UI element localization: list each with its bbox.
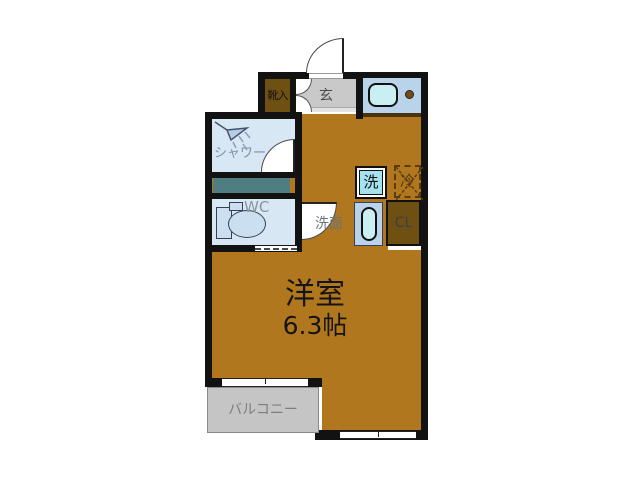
shoebox-area: 靴入 [265, 79, 290, 112]
washer-inner: 洗 [359, 170, 383, 195]
balcony-label: バルコニー [228, 403, 298, 417]
utility-counter-strip [213, 178, 290, 193]
washbasin-label: 洗面 [315, 217, 343, 231]
balcony-window [222, 378, 308, 387]
kitchen-sink-icon [368, 83, 398, 107]
wc-label: WC [244, 200, 269, 215]
wall-right [421, 72, 428, 440]
wall-top-left [258, 72, 309, 79]
main-floor-area-lower [322, 380, 421, 433]
wall-balcony-stub-right [308, 378, 322, 387]
wall-genkan-kitchen-divider [356, 72, 363, 119]
wc-wall-opening [255, 246, 297, 251]
washbasin-bowl-icon [361, 207, 377, 241]
washer-area: 洗 [355, 166, 387, 199]
floorplan-canvas: 靴入 玄 シャワー WC 洗面 CL 洗 [0, 0, 640, 480]
wall-shower-top [205, 112, 302, 119]
wall-mid-vertical [295, 112, 302, 252]
shower-label: シャワー [214, 147, 266, 160]
shoebox-label: 靴入 [268, 90, 288, 101]
burner-icon [405, 90, 414, 99]
main-room-label: 洋室 [255, 280, 375, 310]
washer-label: 洗 [363, 175, 378, 190]
genkan-label: 玄 [319, 89, 333, 103]
fridge-area: 冷 [394, 165, 421, 198]
closet-area: CL [386, 200, 421, 246]
fridge-label: 冷 [400, 174, 415, 189]
closet-label: CL [395, 216, 413, 230]
kitchen-counter-edge [363, 113, 421, 117]
closet-bottom-gap [388, 246, 421, 250]
balcony-area: バルコニー [207, 387, 319, 433]
toilet-flush-icon [229, 202, 243, 211]
main-room-bottom-window [340, 431, 416, 439]
main-room-size: 6.3帖 [255, 313, 375, 338]
wall-balcony-stub-left [205, 378, 222, 387]
entrance-door-arc-icon [306, 38, 344, 73]
